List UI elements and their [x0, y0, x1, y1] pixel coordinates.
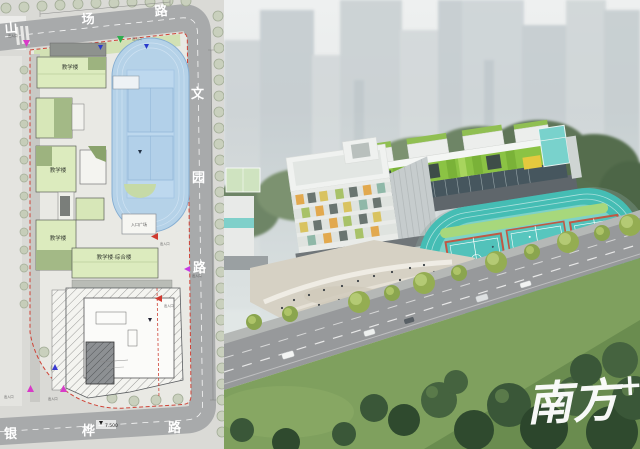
walkway-strip — [72, 280, 172, 288]
entrance-label: 出入口 — [160, 241, 170, 246]
road-char: 路 — [154, 3, 169, 20]
building-core — [60, 196, 70, 216]
elevation-marker: 7.500 — [96, 420, 118, 429]
building-label: 教学楼 — [50, 166, 67, 174]
field-note-box — [113, 76, 139, 89]
teal-glass-box — [538, 125, 569, 166]
road-char: 场 — [81, 12, 95, 28]
road-char: 文 — [191, 86, 205, 102]
sports-field-plan — [112, 38, 189, 232]
site-plan-panel: 教学楼 教学楼 教学楼 入 — [0, 0, 224, 449]
entrance-label: 出入口 — [132, 36, 142, 41]
entrance-label: 出入口 — [192, 273, 202, 278]
road-char: 银 — [4, 426, 18, 442]
building-shadow-bar — [50, 43, 106, 56]
road-char: 桦 — [82, 423, 95, 439]
entrance-label: 出入口 — [4, 394, 14, 399]
watermark-text: 南方 — [525, 372, 626, 431]
plaza-label: 入口广场 — [131, 221, 147, 227]
road-char: 园 — [192, 171, 205, 186]
building-label: 教学楼·综合楼 — [97, 253, 132, 261]
building-small-green — [76, 198, 104, 220]
aerial-rendering-panel: 南方+ — [224, 0, 640, 449]
entrance-label: 出入口 — [8, 33, 18, 38]
watermark-plus: + — [616, 367, 640, 403]
aerial-rendering: 南方+ — [224, 0, 640, 449]
building-teaching-1: 教学楼 — [37, 57, 106, 88]
entrance-label: 出入口 — [164, 303, 174, 308]
entrance-plaza-box: 入口广场 — [122, 214, 156, 234]
news-photo-school-plan-and-rendering: 教学楼 教学楼 教学楼 入 — [0, 0, 640, 449]
site-plan-drawing: 教学楼 教学楼 教学楼 入 — [0, 0, 224, 449]
building-label: 教学楼 — [50, 234, 67, 242]
entrance-label: 出入口 — [48, 396, 58, 401]
building-teaching-complex: 教学楼·综合楼 — [72, 248, 158, 278]
building-teaching-4: 教学楼 — [36, 220, 76, 270]
elevation-value: 7.500 — [105, 423, 118, 429]
road-char: 路 — [168, 420, 182, 436]
plan-neighbor-block — [0, 56, 22, 406]
building-label: 教学楼 — [62, 63, 79, 71]
building-teaching-3: 教学楼 — [36, 146, 76, 192]
